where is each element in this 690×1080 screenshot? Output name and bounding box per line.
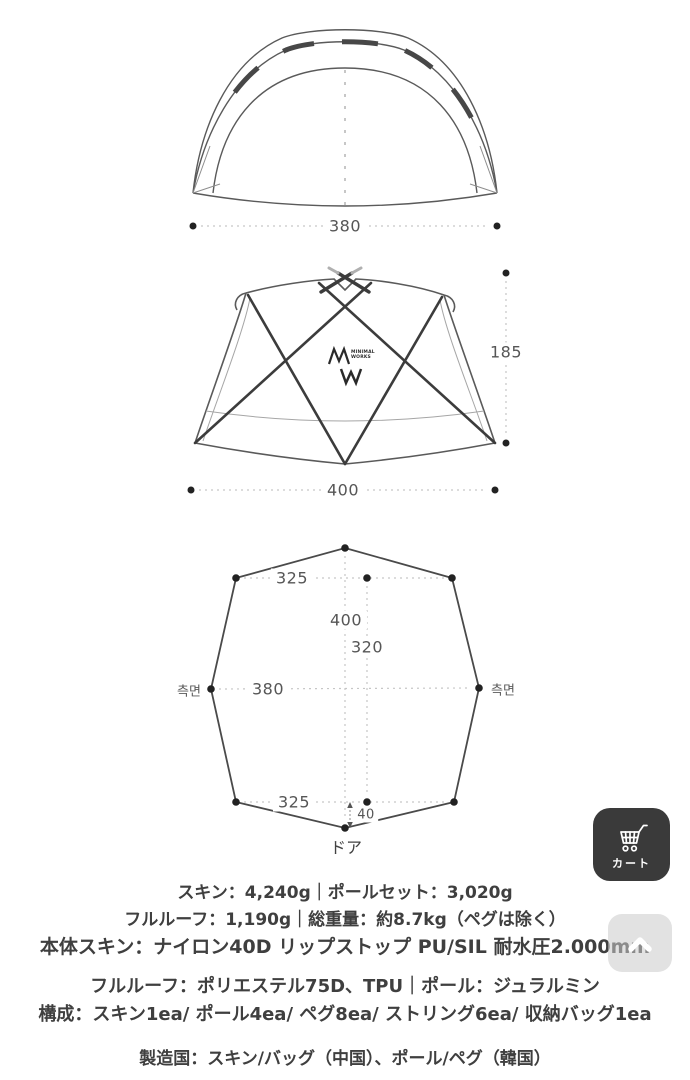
floor-bottom-width-dim-label: 325 [273, 793, 315, 812]
floor-inner-length-dim-label: 320 [346, 638, 388, 657]
tent-side-view-diagram [188, 268, 510, 494]
minimal-works-logo-text: MINIMAL WORKS [351, 350, 375, 360]
front-width-dim-label: 380 [324, 217, 366, 236]
spec-weight-line-1: スキン：4,240g｜ポールセット：3,020g [0, 878, 690, 903]
spec-composition-line: 構成：スキン1ea/ ポール4ea/ ペグ8ea/ ストリング6ea/ 収納バッ… [0, 1000, 690, 1026]
side-width-dim-label: 400 [322, 481, 364, 500]
floor-top-width-dim-label: 325 [271, 569, 313, 588]
floor-door-offset-dim-label: 40 [354, 808, 378, 823]
cart-button-label: カート [612, 855, 651, 871]
spec-material-line-2: フルルーフ：ポリエステル75D、TPU｜ポール：ジュラルミン [0, 972, 690, 998]
scroll-to-top-button[interactable] [608, 914, 672, 972]
spec-origin-line: 製造国：スキン/バッグ（中国）、ポール/ペグ（韓国） [0, 1044, 690, 1069]
side-height-dim-label: 185 [485, 343, 527, 362]
floor-side-label-left: 측면 [177, 681, 201, 700]
cart-button[interactable]: カート [593, 808, 670, 881]
product-detail-page: 380 185 400 MINIMAL WORKS 325 400 320 38… [0, 0, 690, 1080]
floor-door-label: ドア [330, 834, 362, 858]
spec-material-line-1: 本体スキン：ナイロン40D リップストップ PU/SIL 耐水圧2.000mm [0, 932, 690, 959]
cart-icon [614, 823, 650, 853]
chevron-up-icon [623, 932, 657, 954]
floor-length-dim-label: 400 [325, 611, 367, 630]
floor-side-label-right: 측면 [491, 680, 515, 699]
tent-front-view-diagram [190, 30, 501, 230]
floor-middle-width-dim-label: 380 [247, 680, 289, 699]
spec-weight-line-2: フルルーフ：1,190g｜総重量：約8.7kg（ペグは除く） [0, 905, 690, 930]
